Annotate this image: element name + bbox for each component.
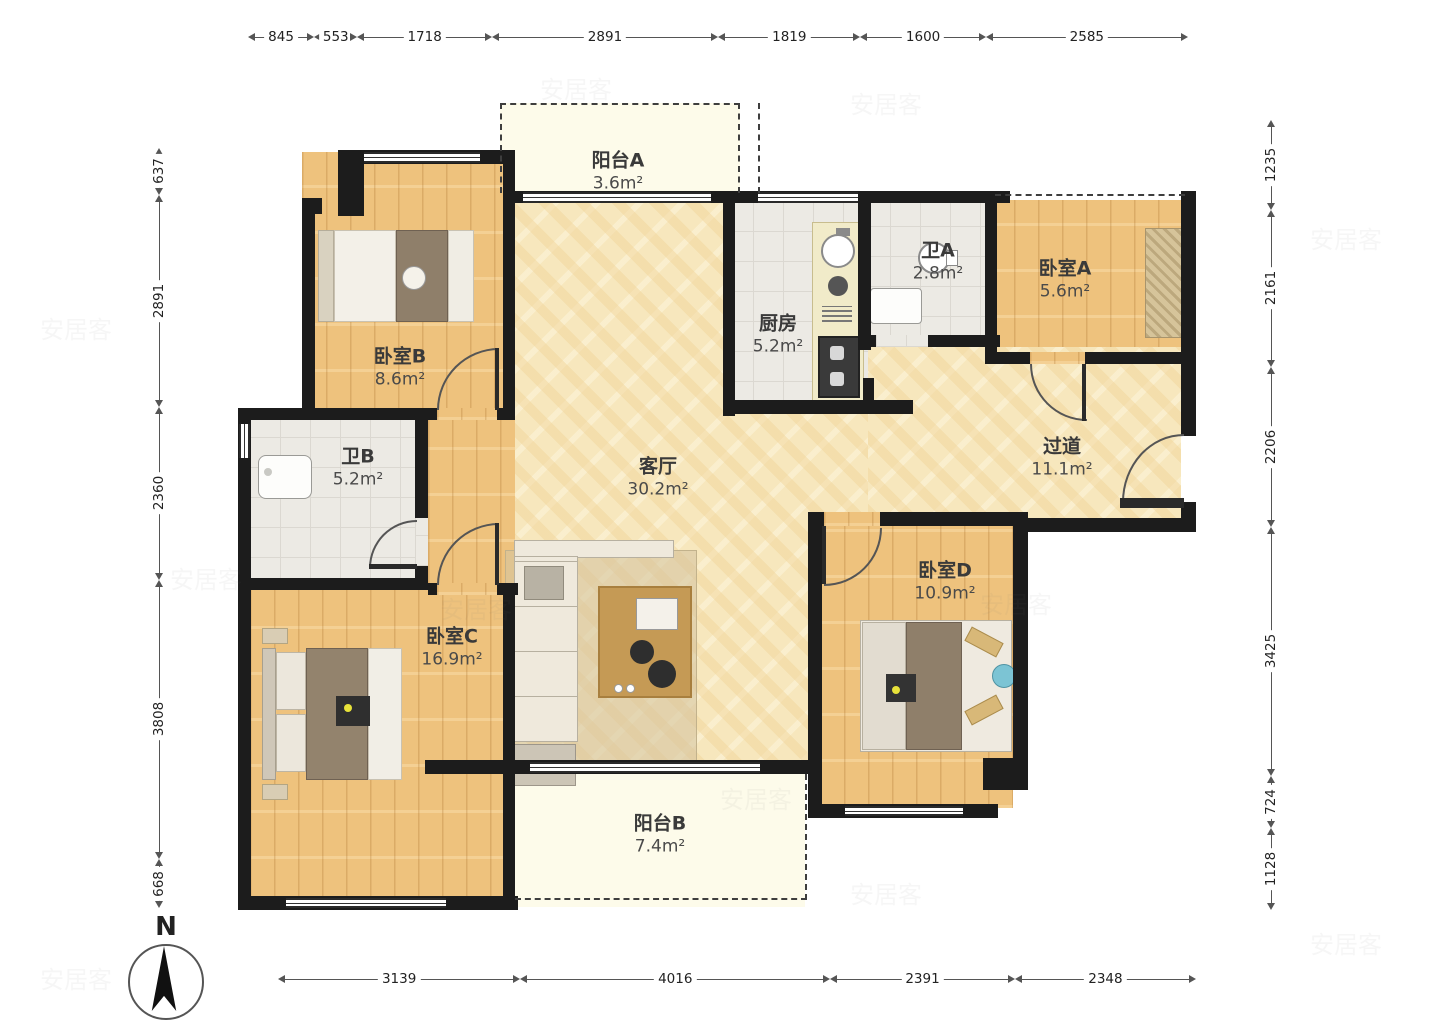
dimension-segment: 4016 [520,970,830,988]
room-area: 5.2m² [333,469,383,490]
dimension-segment: 1600 [860,28,985,46]
dimension-value: 2360 [151,472,167,514]
bed-mattress [334,230,396,322]
table-tray [636,598,678,630]
dashed-line [805,774,807,900]
dimension-value: 4016 [654,971,696,987]
dashed-line [515,898,807,900]
wall [503,772,515,908]
decor-bowl [648,660,676,688]
wall [985,352,1195,364]
dimension-segment: 637 [150,148,168,195]
dashed-line [758,103,760,193]
dimension-segment: 1718 [357,28,491,46]
dimension-value: 845 [264,29,298,45]
dashed-line [738,103,740,193]
watermark: 安居客 [850,875,922,910]
dimension-segment: 3139 [278,970,520,988]
dimension-segment: 845 [248,28,314,46]
dimension-segment: 2360 [150,407,168,580]
wall [723,400,913,414]
wall [983,758,1028,790]
door-opening [824,512,880,526]
wall [238,578,428,590]
room-area: 30.2m² [627,479,688,500]
door-leaf [495,348,499,410]
watermark: 安居客 [40,960,112,995]
room-label-bedroom-d: 卧室D 10.9m² [914,560,975,605]
dimension-column-right: 12352161220634257241128 [1262,120,1280,910]
wall [302,210,315,420]
bed-headboard [318,230,334,322]
dimension-segment: 724 [1262,776,1280,829]
room-label-balcony-b: 阳台B 7.4m² [634,813,686,858]
dimension-segment: 2891 [492,28,718,46]
dimension-segment: 3425 [1262,527,1280,776]
dimension-value: 1718 [403,29,445,45]
window [364,152,480,163]
window [530,762,760,773]
nightstand [262,784,288,800]
dimension-value: 553 [319,29,353,45]
window [845,806,963,816]
window [239,424,250,458]
room-name: 卧室A [1039,258,1092,282]
room-label-living-room: 客厅 30.2m² [627,456,688,501]
kitchen-sink [821,234,855,268]
room-label-bath-b: 卫B 5.2m² [333,446,383,491]
burner [830,346,844,360]
room-name: 阳台B [634,813,686,837]
bed-mattress [368,648,402,780]
burner [830,372,844,386]
room-name: 过道 [1031,436,1092,460]
decor-plate [402,266,426,290]
dimension-segment: 1235 [1262,120,1280,210]
door-leaf [369,564,417,569]
room-name: 卧室C [421,626,482,650]
dimension-segment: 2891 [150,195,168,407]
room-label-bath-a: 卫A 2.8m² [913,240,963,285]
dimension-segment: 1819 [718,28,860,46]
door-opening [1030,352,1085,364]
dimension-segment: 2585 [986,28,1188,46]
watermark: 安居客 [170,560,242,595]
drain [828,276,848,296]
dimension-value: 2348 [1084,971,1126,987]
wall [1181,191,1196,436]
dimension-segment: 553 [314,28,357,46]
dimension-segment: 2391 [830,970,1015,988]
dashed-line [500,103,740,105]
bed-headboard [262,648,276,780]
wall [250,408,312,420]
sofa-cushion [524,566,564,600]
door-opening [876,335,928,347]
dimension-column-left: 637289123603808668 [150,148,168,908]
bed-foot-bench [448,230,474,322]
room-area: 5.6m² [1039,281,1092,302]
dimension-segment: 2206 [1262,367,1280,527]
door-leaf [822,526,826,584]
tray-dot [892,686,900,694]
cup [614,684,623,693]
room-label-bedroom-a: 卧室A 5.6m² [1039,258,1092,303]
dimension-row-bottom: 3139401623912348 [278,970,1196,988]
dimension-value: 724 [1263,785,1279,819]
bed-pillow [276,652,306,710]
washing-machine [870,288,922,324]
room-area: 7.4m² [634,836,686,857]
dimension-value: 2891 [151,280,167,322]
bed-tray [886,674,916,702]
dimension-row-top: 84555317182891181916002585 [248,28,1188,46]
dimension-value: 637 [151,154,167,188]
room-area: 8.6m² [374,369,426,390]
faucet [836,228,850,236]
dimension-value: 1819 [768,29,810,45]
dimension-value: 2585 [1066,29,1108,45]
nightstand [262,628,288,644]
window [286,898,446,908]
dimension-value: 1600 [902,29,944,45]
room-label-bedroom-b: 卧室B 8.6m² [374,346,426,391]
door-leaf [495,523,499,585]
door-leaf [1082,364,1086,421]
cup [626,684,635,693]
room-name: 卧室B [374,346,426,370]
dashed-line [500,103,502,193]
wall [858,200,871,350]
wall [1015,518,1195,532]
dimension-value: 2161 [1263,267,1279,309]
dimension-value: 1128 [1263,848,1279,890]
watermark: 安居客 [40,310,112,345]
dimension-value: 2891 [584,29,626,45]
bed-tray [336,696,370,726]
room-name: 客厅 [627,456,688,480]
room-name: 厨房 [753,313,803,337]
room-area: 5.2m² [753,336,803,357]
dimension-segment: 2348 [1015,970,1196,988]
dimension-segment: 3808 [150,580,168,859]
watermark: 安居客 [1310,925,1382,960]
dimension-segment: 2161 [1262,210,1280,367]
wall [1013,512,1028,767]
room-label-balcony-a: 阳台A 3.6m² [592,150,645,195]
watermark: 安居客 [540,70,612,105]
dimension-segment: 1128 [1262,828,1280,910]
bathtub [258,455,312,499]
room-label-kitchen: 厨房 5.2m² [753,313,803,358]
drain [264,468,272,476]
room-name: 卧室D [914,560,975,584]
room-name: 卫B [333,446,383,470]
room-area: 11.1m² [1031,459,1092,480]
dimension-value: 2391 [901,971,943,987]
wall [985,191,997,363]
room-name: 阳台A [592,150,645,174]
room-area: 16.9m² [421,649,482,670]
vent-grill [822,306,852,322]
dimension-segment: 668 [150,859,168,908]
room-label-bedroom-c: 卧室C 16.9m² [421,626,482,671]
entry-door-leaf [1120,498,1184,508]
room-name: 卫A [913,240,963,264]
watermark: 安居客 [850,85,922,120]
dimension-value: 3139 [378,971,420,987]
watermark: 安居客 [1310,220,1382,255]
room-label-hallway: 过道 11.1m² [1031,436,1092,481]
dashed-line [995,194,1185,196]
wall [238,408,251,908]
dimension-value: 3425 [1263,630,1279,672]
dimension-value: 668 [151,867,167,901]
decor-bowl [630,640,654,664]
room-area: 3.6m² [592,173,645,194]
bed-pillow [276,714,306,772]
dimension-value: 1235 [1263,144,1279,186]
room-area: 10.9m² [914,583,975,604]
wall [723,191,735,416]
window [758,192,858,203]
compass: N [126,912,206,1017]
tray-dot [344,704,352,712]
room-area: 2.8m² [913,263,963,284]
dimension-value: 3808 [151,698,167,740]
compass-north-label: N [126,912,206,942]
dimension-value: 2206 [1263,426,1279,468]
